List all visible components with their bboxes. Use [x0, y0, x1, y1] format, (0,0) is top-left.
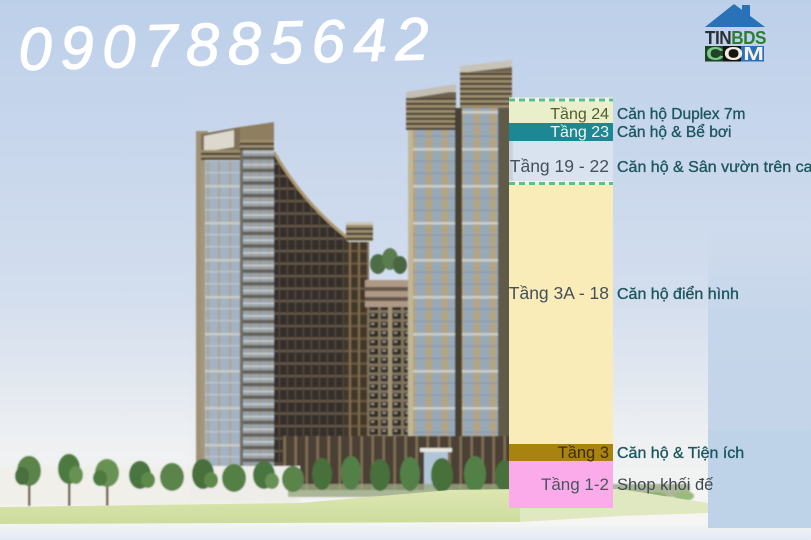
svg-text:Tầng 3: Tầng 3 — [558, 444, 609, 462]
svg-text:0907885642: 0907885642 — [18, 5, 438, 83]
svg-text:Căn hộ & Tiện ích: Căn hộ & Tiện ích — [617, 445, 744, 462]
svg-text:Căn hộ điển hình: Căn hộ điển hình — [617, 285, 739, 303]
svg-text:Tầng 23: Tầng 23 — [550, 124, 609, 141]
svg-text:Shop khối đế: Shop khối đế — [617, 476, 713, 494]
svg-text:Căn hộ & Sân vườn trên cao: Căn hộ & Sân vườn trên cao — [617, 159, 811, 176]
svg-text:Tầng 1-2: Tầng 1-2 — [541, 475, 609, 494]
svg-text:Căn hộ & Bể bơi: Căn hộ & Bể bơi — [617, 124, 731, 141]
svg-text:COM: COM — [706, 44, 764, 64]
svg-text:Căn hộ Duplex 7m: Căn hộ Duplex 7m — [617, 106, 745, 123]
svg-text:Tầng 19 - 22: Tầng 19 - 22 — [510, 156, 609, 176]
svg-text:Tầng 24: Tầng 24 — [550, 106, 609, 123]
svg-text:Tầng 3A - 18: Tầng 3A - 18 — [509, 283, 609, 303]
